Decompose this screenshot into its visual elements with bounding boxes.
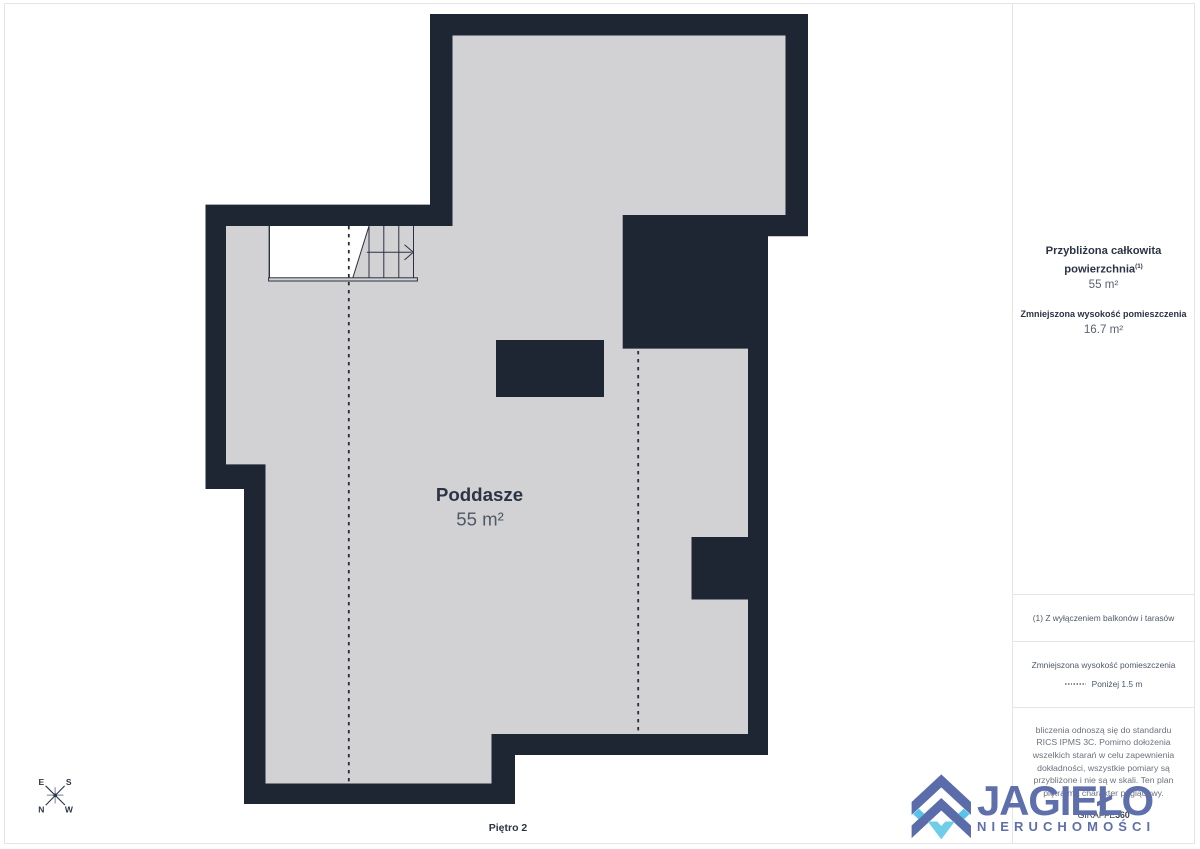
svg-text:55 m²: 55 m² xyxy=(456,509,504,530)
svg-text:JAGIEŁO: JAGIEŁO xyxy=(977,777,1153,824)
svg-text:W: W xyxy=(65,804,74,814)
svg-text:NIERUCHOMOŚCI: NIERUCHOMOŚCI xyxy=(977,819,1155,834)
svg-text:Piętro 2: Piętro 2 xyxy=(489,822,528,834)
svg-text:N: N xyxy=(38,804,44,814)
svg-text:Poddasze: Poddasze xyxy=(436,484,523,505)
svg-text:E: E xyxy=(38,777,44,787)
svg-text:S: S xyxy=(66,777,72,787)
